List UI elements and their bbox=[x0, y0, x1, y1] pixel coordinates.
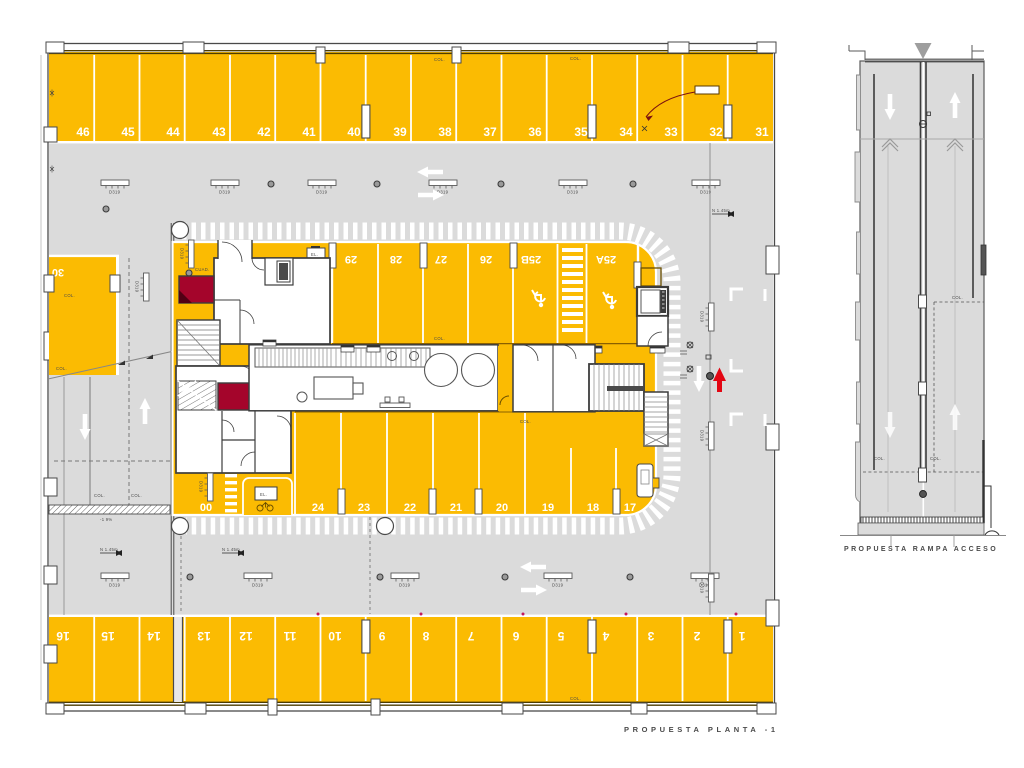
svg-text:EL.: EL. bbox=[311, 252, 318, 257]
svg-text:COL.: COL. bbox=[952, 295, 963, 300]
svg-text:35: 35 bbox=[574, 125, 588, 139]
svg-text:PROPUESTA RAMPA ACCESO: PROPUESTA RAMPA ACCESO bbox=[844, 546, 998, 553]
svg-text:24: 24 bbox=[312, 502, 325, 514]
svg-text:COL.: COL. bbox=[94, 493, 105, 498]
svg-text:00: 00 bbox=[200, 502, 212, 514]
svg-text:40: 40 bbox=[347, 125, 361, 139]
svg-text:COL.: COL. bbox=[570, 56, 581, 61]
svg-text:42: 42 bbox=[257, 125, 271, 139]
svg-text:21: 21 bbox=[450, 502, 462, 514]
svg-text:7: 7 bbox=[467, 629, 474, 643]
svg-text:COL.: COL. bbox=[56, 366, 67, 371]
svg-text:COL.: COL. bbox=[64, 293, 75, 298]
svg-text:38: 38 bbox=[438, 125, 452, 139]
svg-text:19: 19 bbox=[542, 502, 554, 514]
svg-text:25A: 25A bbox=[596, 253, 616, 265]
svg-text:46: 46 bbox=[76, 125, 90, 139]
svg-text:15: 15 bbox=[101, 629, 115, 643]
svg-text:-1 9%: -1 9% bbox=[100, 517, 112, 522]
svg-text:COL.: COL. bbox=[434, 336, 445, 341]
svg-text:39: 39 bbox=[393, 125, 407, 139]
svg-text:5: 5 bbox=[557, 629, 564, 643]
svg-text:COL.: COL. bbox=[570, 696, 581, 701]
svg-text:45: 45 bbox=[121, 125, 135, 139]
svg-text:23: 23 bbox=[358, 502, 370, 514]
svg-text:9: 9 bbox=[378, 629, 385, 643]
svg-text:12: 12 bbox=[239, 629, 253, 643]
svg-text:22: 22 bbox=[404, 502, 416, 514]
svg-text:34: 34 bbox=[619, 125, 633, 139]
svg-text:37: 37 bbox=[483, 125, 497, 139]
svg-text:36: 36 bbox=[528, 125, 542, 139]
svg-text:COL.: COL. bbox=[434, 57, 445, 62]
svg-text:41: 41 bbox=[302, 125, 316, 139]
svg-text:26: 26 bbox=[480, 253, 492, 265]
svg-text:6: 6 bbox=[512, 629, 519, 643]
svg-text:20: 20 bbox=[496, 502, 508, 514]
svg-text:17: 17 bbox=[624, 502, 636, 514]
svg-text:3: 3 bbox=[647, 629, 654, 643]
svg-text:COL.: COL. bbox=[930, 456, 941, 461]
svg-text:29: 29 bbox=[345, 253, 357, 265]
svg-text:32: 32 bbox=[709, 125, 723, 139]
svg-text:1: 1 bbox=[738, 629, 745, 643]
svg-text:4: 4 bbox=[602, 629, 609, 643]
svg-text:27: 27 bbox=[435, 253, 447, 265]
svg-text:13: 13 bbox=[197, 629, 211, 643]
svg-text:CUAD.: CUAD. bbox=[195, 267, 210, 272]
svg-text:31: 31 bbox=[755, 125, 769, 139]
svg-text:10: 10 bbox=[328, 629, 342, 643]
svg-text:18: 18 bbox=[587, 502, 599, 514]
svg-text:2: 2 bbox=[693, 629, 700, 643]
svg-text:44: 44 bbox=[166, 125, 180, 139]
svg-text:14: 14 bbox=[147, 629, 161, 643]
svg-text:COL.: COL. bbox=[874, 456, 885, 461]
svg-text:8: 8 bbox=[422, 629, 429, 643]
svg-text:16: 16 bbox=[56, 629, 70, 643]
svg-text:11: 11 bbox=[283, 629, 296, 643]
svg-text:PROPUESTA PLANTA -1: PROPUESTA PLANTA -1 bbox=[624, 725, 779, 734]
svg-text:33: 33 bbox=[664, 125, 678, 139]
svg-text:25B: 25B bbox=[521, 253, 541, 265]
svg-text:EL.: EL. bbox=[260, 492, 267, 497]
svg-text:COL.: COL. bbox=[131, 493, 142, 498]
svg-text:28: 28 bbox=[390, 253, 402, 265]
svg-text:COL.: COL. bbox=[520, 419, 531, 424]
svg-text:43: 43 bbox=[212, 125, 226, 139]
